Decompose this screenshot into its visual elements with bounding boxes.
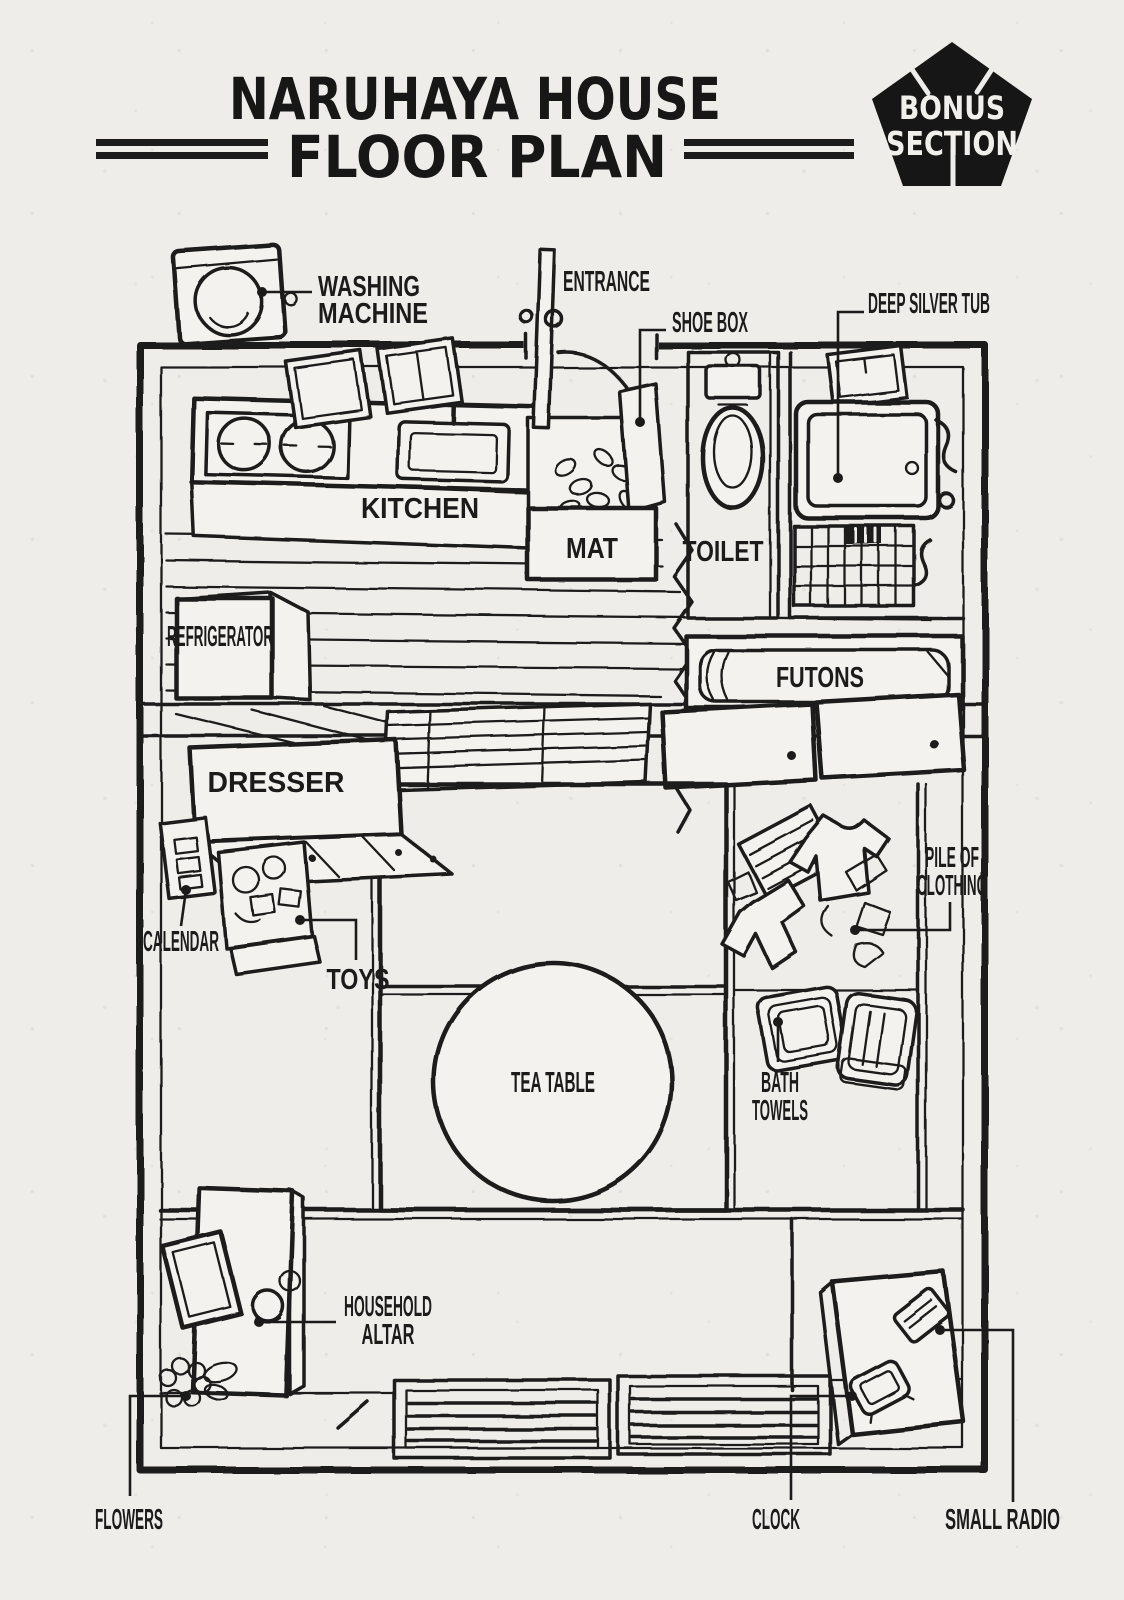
toilet-room [688,352,778,618]
label-bath-towels-2: TOWELS [752,1095,808,1127]
label-entrance: ENTRANCE [563,266,650,298]
bonus-section-badge: BONUS SECTION [872,42,1032,188]
kitchen-window-2 [378,339,462,413]
label-toilet: TOILET [683,536,764,568]
label-deep-silver-tub: DEEP SILVER TUB [868,288,990,320]
page-header: NARUHAYA HOUSE FLOOR PLAN BONUS SECTION [96,42,1032,191]
page-title-line2: FLOOR PLAN [287,123,667,191]
sliding-closet-doors [662,694,964,788]
shoe-box-drawing [620,384,665,512]
pile-leader [850,902,950,935]
bathtub-drawing [796,402,938,518]
pile-of-clothing-drawing [722,806,890,968]
floor-plan-page: NARUHAYA HOUSE FLOOR PLAN BONUS SECTION [0,0,1124,1600]
label-calendar: CALENDAR [143,926,219,958]
badge-line1: BONUS [899,89,1005,127]
label-pile-of-clothing-2: CLOTHING [917,870,987,902]
badge-line2: SECTION [886,124,1018,163]
label-shoe-box: SHOE BOX [672,307,748,339]
label-small-radio: SMALL RADIO [945,1504,1060,1536]
label-flowers: FLOWERS [95,1504,163,1536]
label-toys: TOYS [327,964,390,996]
label-refrigerator: REFRIGERATOR [167,621,273,653]
corner-table-drawing [820,1272,964,1444]
label-washing-machine-2: MACHINE [318,298,428,330]
label-dresser: DRESSER [208,767,345,799]
label-futons: FUTONS [776,662,864,694]
kitchen-window-1 [286,351,370,427]
bath-tiles [794,526,914,606]
label-tea-table: TEA TABLE [511,1067,595,1099]
calendar-leader [181,885,191,926]
label-household-altar-2: ALTAR [362,1319,415,1351]
washing-machine-drawing [173,244,299,344]
floor-plan-drawing [140,244,985,1470]
bathroom [790,346,963,618]
label-kitchen: KITCHEN [361,493,479,525]
toy-box-drawing [218,842,320,974]
veranda-grates [394,1376,830,1458]
label-clock: CLOCK [752,1504,800,1536]
slatted-window [384,704,650,790]
label-mat: MAT [566,533,618,565]
